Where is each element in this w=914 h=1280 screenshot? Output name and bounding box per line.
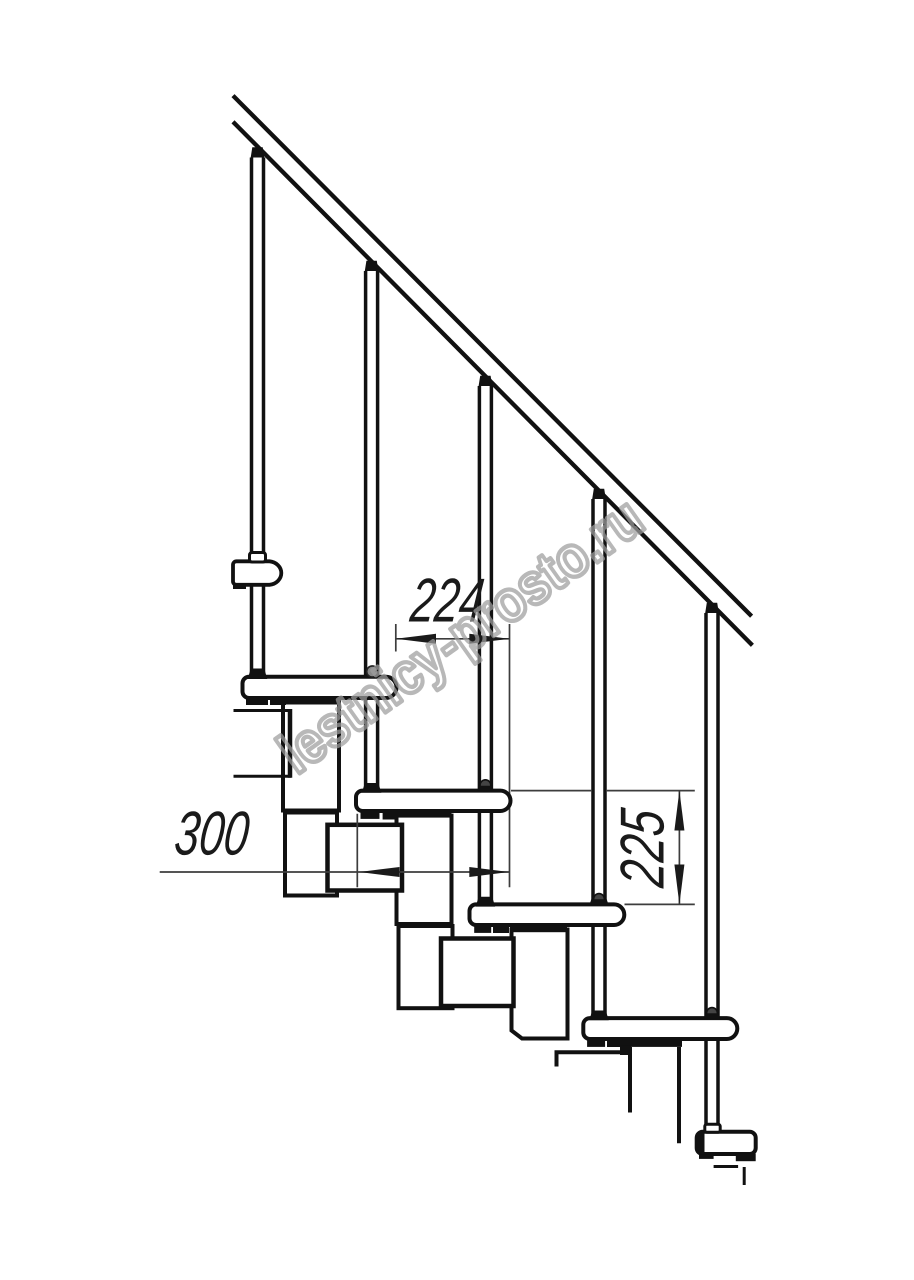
svg-text:225: 225 xyxy=(607,805,677,891)
svg-text:300: 300 xyxy=(171,799,252,868)
